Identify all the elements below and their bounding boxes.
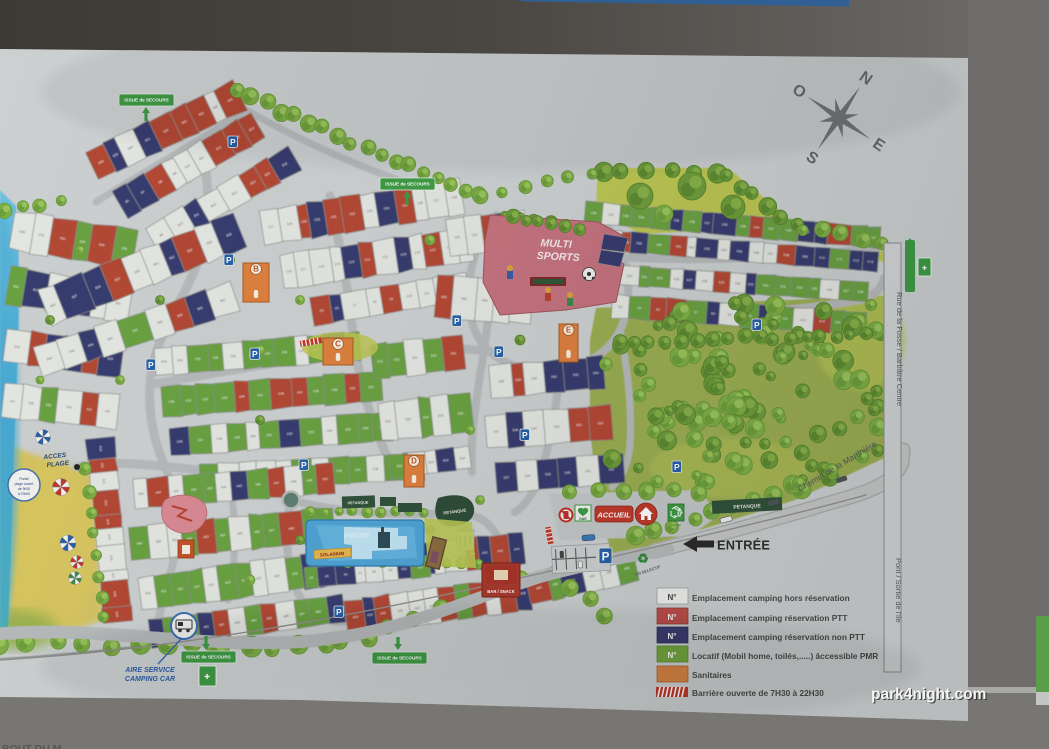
svg-text:park4night.com: park4night.com	[871, 686, 986, 703]
svg-text:BOUT DU M: BOUT DU M	[2, 743, 62, 749]
